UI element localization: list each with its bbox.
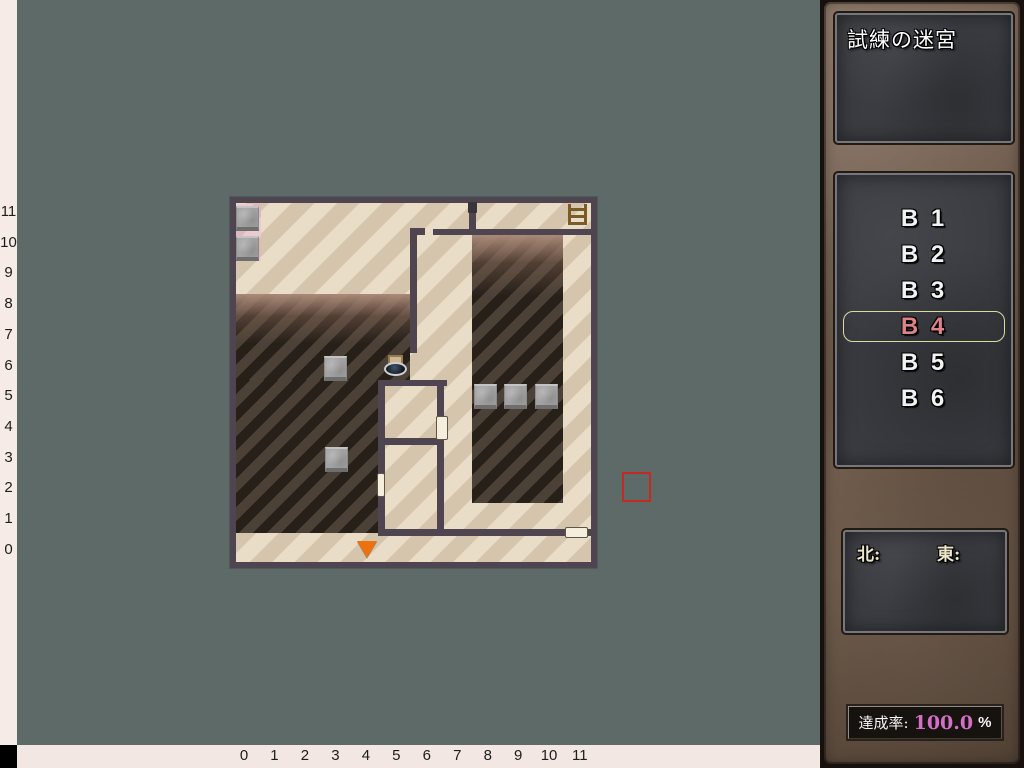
stone-block <box>325 447 348 472</box>
well-item-icon <box>384 355 408 377</box>
x-axis-label: 6 <box>419 746 435 766</box>
floor-list-item[interactable]: B 6 <box>843 383 1005 414</box>
floor-list: B 1B 2B 3B 4B 5B 6 <box>843 203 1005 414</box>
y-axis-label: 9 <box>0 264 17 282</box>
y-axis-label: 6 <box>0 357 17 375</box>
room-wall-left <box>378 380 385 532</box>
map-cursor <box>622 472 651 502</box>
y-axis-label: 10 <box>0 234 17 252</box>
floor-list-item[interactable]: B 1 <box>843 203 1005 234</box>
achievement-unit: % <box>978 714 991 731</box>
floor-list-item[interactable]: B 3 <box>843 275 1005 306</box>
y-axis-labels: 11109876543210 <box>0 203 17 559</box>
y-axis-label: 2 <box>0 479 17 497</box>
unexplored-area-left-lower <box>236 380 378 533</box>
axis-corner <box>0 745 17 768</box>
unexplored-area-right <box>472 235 563 503</box>
x-axis-label: 8 <box>480 746 496 766</box>
stone-block <box>236 236 259 261</box>
x-axis-label: 3 <box>327 746 343 766</box>
door-icon-top <box>468 202 477 213</box>
x-axis-labels: 01234567891011 <box>236 746 588 766</box>
fog-gradient <box>236 294 410 344</box>
y-axis-label: 5 <box>0 387 17 405</box>
y-axis-label: 8 <box>0 295 17 313</box>
y-axis-label: 11 <box>0 203 17 221</box>
wall-corner-bit <box>410 228 425 235</box>
door-icon-bottom-right <box>565 527 588 538</box>
y-axis-label: 3 <box>0 449 17 467</box>
y-axis-label: 4 <box>0 418 17 436</box>
stone-block <box>324 356 347 381</box>
well-bowl <box>384 362 407 376</box>
stone-block <box>236 206 259 231</box>
game-screen: 11109876543210 01234567891011 <box>0 0 1024 768</box>
x-axis-label: 11 <box>572 746 588 766</box>
x-axis-label: 5 <box>388 746 404 766</box>
y-axis-label: 0 <box>0 541 17 559</box>
y-axis-label: 1 <box>0 510 17 528</box>
floor-list-item[interactable]: B 5 <box>843 347 1005 378</box>
fog-gradient <box>472 235 563 297</box>
map-wall-top <box>230 197 597 203</box>
x-axis-label: 1 <box>266 746 282 766</box>
achievement-rate-box: 達成率: 100.0 % <box>848 706 1002 739</box>
achievement-value: 100.0 <box>914 712 974 734</box>
dungeon-map <box>230 197 597 568</box>
wall-top-corridor <box>433 229 592 235</box>
north-label: 北: <box>857 540 880 565</box>
x-axis-label: 10 <box>541 746 558 766</box>
room-wall-divider <box>381 438 443 445</box>
wall-vertical-left <box>410 228 417 353</box>
door-icon-room-left <box>377 473 385 497</box>
x-axis-label: 0 <box>236 746 252 766</box>
door-icon-room-right <box>436 416 448 440</box>
compass-info-panel: 北: 東: <box>843 530 1007 633</box>
floor-select-panel: B 1B 2B 3B 4B 5B 6 <box>835 173 1013 467</box>
room-wall-right <box>437 380 444 532</box>
stone-block <box>474 384 497 409</box>
achievement-label: 達成率: <box>859 712 909 733</box>
x-axis-label: 9 <box>510 746 526 766</box>
east-label: 東: <box>937 540 960 565</box>
stone-block <box>504 384 527 409</box>
dungeon-title: 試練の迷宮 <box>847 24 957 54</box>
floor-list-item[interactable]: B 2 <box>843 239 1005 270</box>
stone-block <box>535 384 558 409</box>
dungeon-title-panel: 試練の迷宮 <box>835 13 1013 143</box>
x-axis-label: 2 <box>297 746 313 766</box>
y-axis-label: 7 <box>0 326 17 344</box>
player-marker-icon <box>357 541 377 558</box>
x-axis-label: 4 <box>358 746 374 766</box>
map-wall-bottom <box>230 562 597 568</box>
map-wall-right <box>591 197 597 568</box>
stairs-ladder-icon <box>568 204 587 225</box>
floor-list-item[interactable]: B 4 <box>843 311 1005 342</box>
x-axis-label: 7 <box>449 746 465 766</box>
